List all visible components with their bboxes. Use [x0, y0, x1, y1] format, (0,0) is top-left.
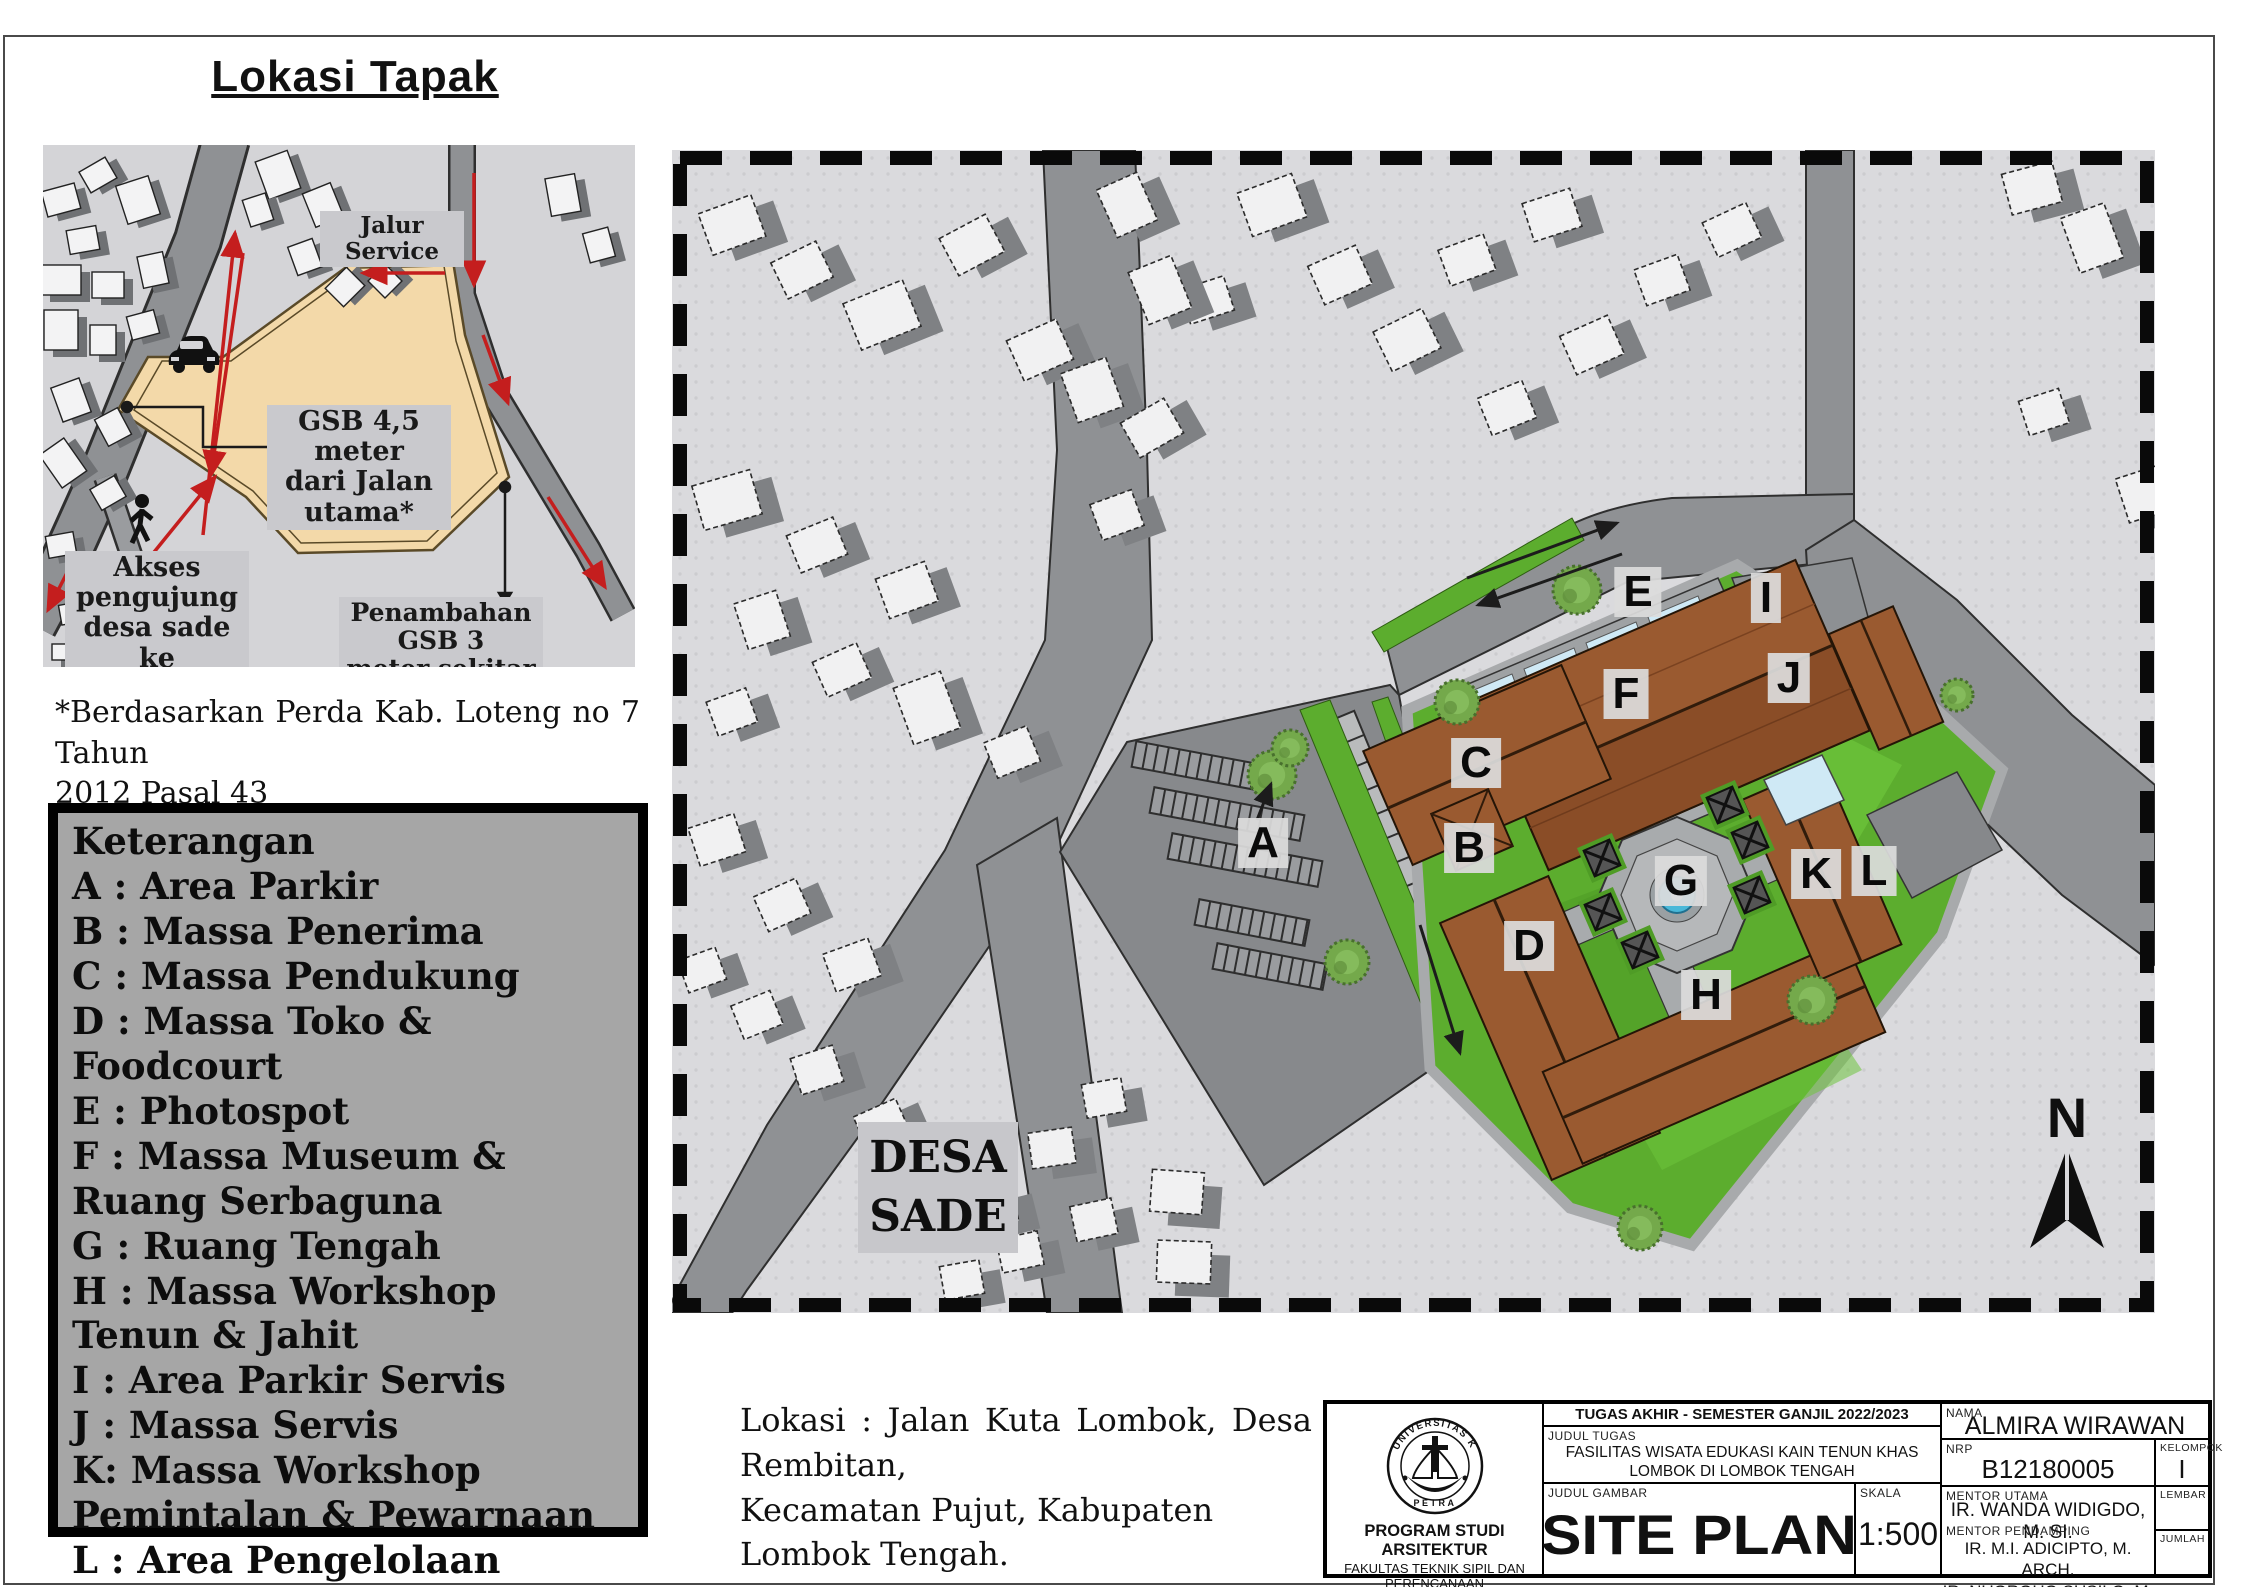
page-title: Lokasi Tapak	[120, 52, 590, 102]
legend-item: D : Massa Toko & Foodcourt	[72, 999, 624, 1089]
legend-box: Keterangan A : Area ParkirB : Massa Pene…	[48, 803, 648, 1537]
footnote: *Berdasarkan Perda Kab. Loteng no 7 Tahu…	[55, 693, 640, 815]
site-label-d: D	[1504, 921, 1554, 971]
desa-sade-label: DESA SADE	[858, 1122, 1018, 1253]
legend-item: I : Area Parkir Servis	[72, 1358, 624, 1403]
legend-item: A : Area Parkir	[72, 864, 624, 909]
site-label-k: K	[1791, 849, 1841, 899]
site-label-l: L	[1852, 846, 1897, 896]
location-caption: Lokasi : Jalan Kuta Lombok, Desa Rembita…	[740, 1398, 1312, 1577]
legend-item: J : Massa Servis	[72, 1403, 624, 1448]
mentor-cell: MENTOR UTAMA IR. WANDA WIDIGDO, M. SI. M…	[1941, 1486, 2155, 1575]
university-logo-icon: UNIVERSITAS KRISTEN PETRA	[1385, 1416, 1485, 1516]
site-label-c: C	[1451, 738, 1501, 788]
legend-item: C : Massa Pendukung	[72, 954, 624, 999]
lembar-cell: LEMBAR	[2155, 1486, 2209, 1530]
legend-item: H : Massa Workshop Tenun & Jahit	[72, 1269, 624, 1359]
judul-tugas-cell: JUDUL TUGAS FASILITAS WISATA EDUKASI KAI…	[1543, 1426, 1941, 1483]
site-label-a: A	[1238, 818, 1288, 868]
gsb-label: GSB 4,5 meterdari Jalan utama*	[267, 405, 451, 530]
site-label-g: G	[1655, 856, 1707, 906]
site-plan-map: A B C D E F G H I J K L DESA SADE N	[672, 150, 2155, 1313]
legend-item: E : Photospot	[72, 1089, 624, 1134]
inset-location-map: Jalur Service GSB 4,5 meterdari Jalan ut…	[43, 145, 635, 667]
student-id: B12180005	[1942, 1454, 2154, 1485]
svg-text:PETRA: PETRA	[1413, 1498, 1456, 1508]
drawing-title: SITE PLAN	[1532, 1502, 1867, 1567]
sheet: Lokasi Tapak	[0, 0, 2245, 1587]
legend-item: K: Massa Workshop Pemintalan & Pewarnaan	[72, 1448, 624, 1538]
penambahan-label: Penambahan GSB 3meter sekitar tapak	[339, 597, 543, 667]
north-indicator: N	[2012, 1090, 2122, 1259]
akses-label: Akses pengujungdesa sade ketapak	[65, 551, 249, 667]
judul-gambar-cell: JUDUL GAMBAR SITE PLAN	[1543, 1483, 1855, 1575]
site-label-j: J	[1768, 653, 1810, 703]
site-label-f: F	[1604, 669, 1649, 719]
header-cell: TUGAS AKHIR - SEMESTER GANJIL 2022/2023	[1543, 1403, 1941, 1426]
jumlah-cell: JUMLAH	[2155, 1530, 2209, 1575]
nama-cell: NAMA ALMIRA WIRAWAN	[1941, 1403, 2209, 1439]
student-name: ALMIRA WIRAWAN	[1942, 1412, 2208, 1441]
legend-item: G : Ruang Tengah	[72, 1224, 624, 1269]
title-block: UNIVERSITAS KRISTEN PETRA PROGRAM STUDI …	[1323, 1400, 2212, 1578]
logo-cell: UNIVERSITAS KRISTEN PETRA PROGRAM STUDI …	[1326, 1403, 1543, 1575]
legend-items: A : Area ParkirB : Massa PenerimaC : Mas…	[72, 864, 624, 1587]
program-studi-text: PROGRAM STUDI ARSITEKTUR FAKULTAS TEKNIK…	[1327, 1522, 1542, 1587]
kelompok-cell: KELOMPOK I	[2155, 1439, 2209, 1486]
site-label-b: B	[1444, 823, 1494, 873]
legend-item: F : Massa Museum & Ruang Serbaguna	[72, 1134, 624, 1224]
site-label-i: I	[1751, 573, 1781, 623]
mentor-pendamping: IR. M.I. ADICIPTO, M. ARCH. IR. NUGROHO …	[1942, 1538, 2154, 1587]
site-label-e: E	[1614, 567, 1661, 617]
jalur-service-label: Jalur Service	[320, 211, 464, 267]
north-label: N	[2012, 1090, 2122, 1146]
legend-item: B : Massa Penerima	[72, 909, 624, 954]
site-label-h: H	[1681, 970, 1731, 1020]
skala-cell: SKALA 1:500	[1855, 1483, 1941, 1575]
nrp-cell: NRP B12180005	[1941, 1439, 2155, 1486]
scale-value: 1:500	[1856, 1516, 1940, 1553]
legend-item: L : Area Pengelolaan Limbah	[72, 1538, 624, 1587]
north-arrow-icon	[2022, 1146, 2112, 1254]
legend-title: Keterangan	[72, 819, 624, 864]
